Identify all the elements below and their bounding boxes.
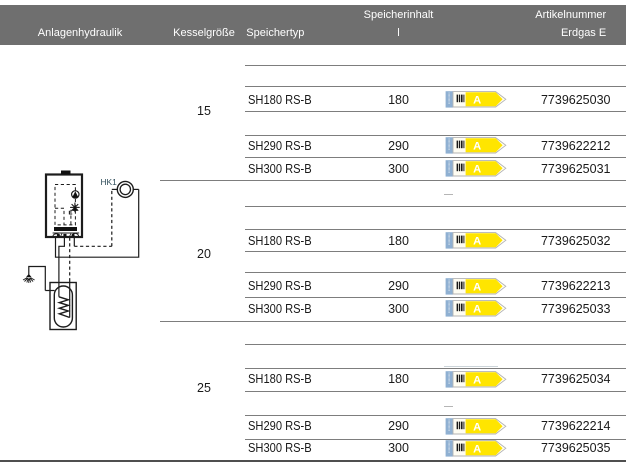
svg-text:HK1: HK1 [101,177,118,187]
